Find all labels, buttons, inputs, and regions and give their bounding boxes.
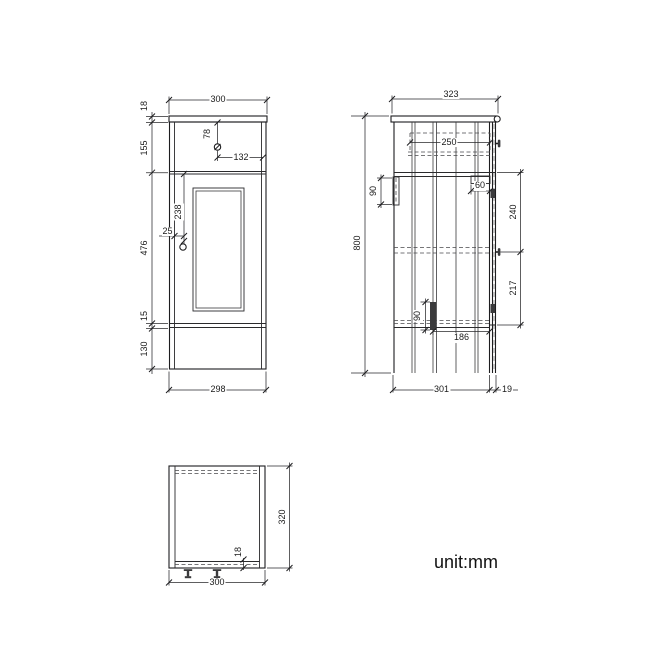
dim-front-drawer-height: 155 — [140, 139, 150, 156]
dim-front-plinth: 130 — [140, 340, 150, 357]
side-countertop-bullnose — [494, 116, 500, 122]
dim-front-top-width: 300 — [209, 95, 226, 105]
dim-side-overall-height: 800 — [353, 234, 363, 251]
front-view — [146, 97, 267, 393]
dim-front-door-knob-top: 238 — [174, 203, 184, 220]
dim-side-top-depth: 323 — [442, 90, 459, 100]
dim-side-drawer-depth: 250 — [440, 138, 457, 148]
dim-side-bottom-depth: 301 — [433, 385, 450, 395]
technical-drawing — [0, 0, 650, 650]
dim-front-bottom-rail: 15 — [140, 310, 150, 322]
dim-side-hinge-plate: 60 — [474, 181, 486, 191]
front-door-panel-outer — [193, 188, 244, 311]
dim-front-door-height: 476 — [140, 239, 150, 256]
front-countertop — [169, 116, 267, 122]
front-door-knob — [180, 244, 186, 250]
top-hidden-lines — [175, 471, 260, 565]
top-view — [169, 463, 293, 586]
front-door-panel-inner — [196, 191, 241, 308]
dim-side-stay-offset: 186 — [453, 333, 470, 343]
side-drawer-knob — [496, 140, 501, 148]
side-dimension-lines — [351, 96, 524, 393]
dim-front-drawer-knob-right: 132 — [232, 153, 249, 163]
top-fixing-bolt-left — [184, 569, 192, 578]
side-door-knob — [496, 248, 501, 256]
top-outline — [169, 466, 265, 568]
side-countertop — [391, 116, 497, 122]
front-bottom-rail — [170, 324, 267, 328]
dim-top-depth: 320 — [278, 508, 288, 525]
dim-side-door-thickness: 19 — [501, 385, 513, 395]
top-panel-lines — [175, 466, 260, 568]
top-dimension-lines — [169, 463, 293, 586]
side-hinge-lower — [491, 304, 496, 313]
side-view — [351, 96, 524, 393]
dim-top-width: 300 — [208, 578, 225, 588]
side-door-stay — [430, 302, 436, 330]
dim-side-knob-from-top: 240 — [509, 203, 519, 220]
dim-front-countertop: 18 — [140, 100, 150, 112]
drawing-canvas: 300 18 155 476 15 130 78 132 238 25 298 … — [0, 0, 650, 650]
dim-side-door-stay: 90 — [413, 310, 423, 322]
dim-front-door-knob-left: 25 — [161, 227, 173, 237]
dim-front-bottom-width: 298 — [209, 385, 226, 395]
unit-note: unit:mm — [434, 552, 498, 573]
dim-side-knob-to-bottom: 217 — [509, 279, 519, 296]
dim-side-back-bracket: 90 — [369, 185, 379, 197]
dim-front-drawer-knob-top: 78 — [203, 128, 213, 140]
dim-top-back-rail: 18 — [234, 545, 244, 557]
front-dimension-lines — [146, 97, 267, 393]
